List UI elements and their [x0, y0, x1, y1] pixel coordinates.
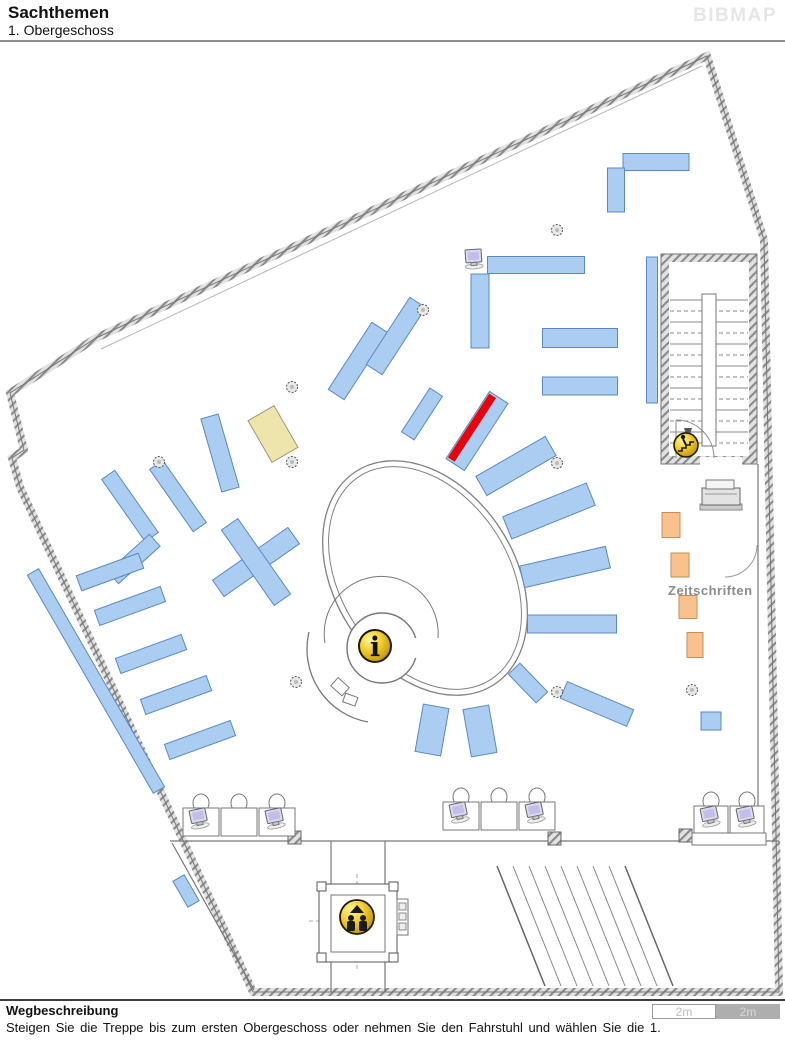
column-core [290, 460, 294, 464]
info-icon-glyph: i [370, 632, 380, 663]
scale-segment-2: 2m [716, 1004, 780, 1019]
directions-text: Steigen Sie die Treppe bis zum ersten Ob… [6, 1020, 779, 1035]
column-core [421, 308, 425, 312]
staircase-edge [497, 866, 545, 986]
bookshelf [76, 553, 143, 591]
stair-step [593, 866, 641, 986]
stair-step [577, 866, 625, 986]
column-core [555, 228, 559, 232]
bookshelf [102, 470, 159, 541]
desk-item [343, 693, 358, 706]
bookshelf [415, 704, 449, 756]
elevator-corner [317, 882, 326, 891]
scale-segment-1: 2m [652, 1004, 716, 1019]
column-core [290, 385, 294, 389]
magazine-shelf [679, 596, 697, 619]
magazine-shelf [671, 553, 689, 577]
bookshelf [94, 587, 165, 626]
desk [221, 808, 257, 836]
floor-plan-map: iZeitschriften [0, 0, 785, 1043]
stair-divider [702, 294, 716, 446]
bookshelf [471, 274, 489, 348]
bookshelf [140, 676, 211, 715]
bookshelf [476, 436, 556, 495]
bookshelf [503, 483, 595, 539]
directions-panel: Wegbeschreibung Steigen Sie die Treppe b… [0, 999, 785, 1043]
column-core [157, 460, 161, 464]
copier [700, 480, 742, 510]
bookshelf [543, 377, 618, 395]
bookshelf [115, 635, 186, 674]
computer-station [183, 794, 295, 836]
computer-station [692, 792, 766, 845]
person-glyph [359, 921, 367, 931]
bookshelf [463, 705, 497, 757]
staircase-edge [625, 866, 673, 986]
bookshelf [528, 615, 617, 633]
wall [172, 843, 254, 990]
bin [679, 829, 692, 842]
bibmap-logo: BIBMAP [693, 5, 777, 27]
floor-label: 1. Obergeschoss [8, 23, 785, 38]
bookshelf [488, 257, 585, 274]
bookshelf [608, 168, 625, 212]
bookshelf [543, 329, 618, 348]
column-core [294, 680, 298, 684]
column-core [690, 688, 694, 692]
page-header: Sachthemen 1. Obergeschoss BIBMAP [0, 0, 785, 42]
door-arc [725, 545, 757, 577]
bookshelf [164, 721, 235, 760]
reading-table [248, 406, 298, 463]
elevator-corner [389, 882, 398, 891]
info-desk-opening [404, 638, 422, 658]
stair-step [529, 866, 577, 986]
bookshelf [623, 154, 689, 171]
computer-terminal [464, 249, 483, 270]
column-core [555, 690, 559, 694]
bookshelf [201, 414, 239, 492]
scale-bar: 2m 2m [652, 1004, 780, 1019]
bookshelf [647, 257, 658, 403]
bookshelf [221, 519, 290, 606]
bookshelf [560, 682, 633, 727]
stair-step [545, 866, 593, 986]
bookshelf [520, 546, 611, 587]
computer-station [443, 788, 555, 830]
desk [481, 802, 517, 830]
bookshelf [508, 663, 547, 703]
counter [692, 833, 766, 845]
bookshelf [173, 875, 199, 907]
monitor-screen [468, 252, 480, 261]
bin [548, 832, 561, 845]
magazine-shelf [662, 513, 680, 538]
column-core [555, 461, 559, 465]
person-glyph [347, 921, 355, 931]
stair-step [561, 866, 609, 986]
page-title: Sachthemen [8, 4, 785, 22]
zeitschriften-label: Zeitschriften [668, 583, 753, 598]
bookshelf [402, 388, 443, 440]
bookshelf [150, 460, 207, 531]
elevator-corner [317, 953, 326, 962]
bookshelf [701, 712, 721, 730]
elevator-corner [389, 953, 398, 962]
magazine-shelf [687, 633, 703, 658]
